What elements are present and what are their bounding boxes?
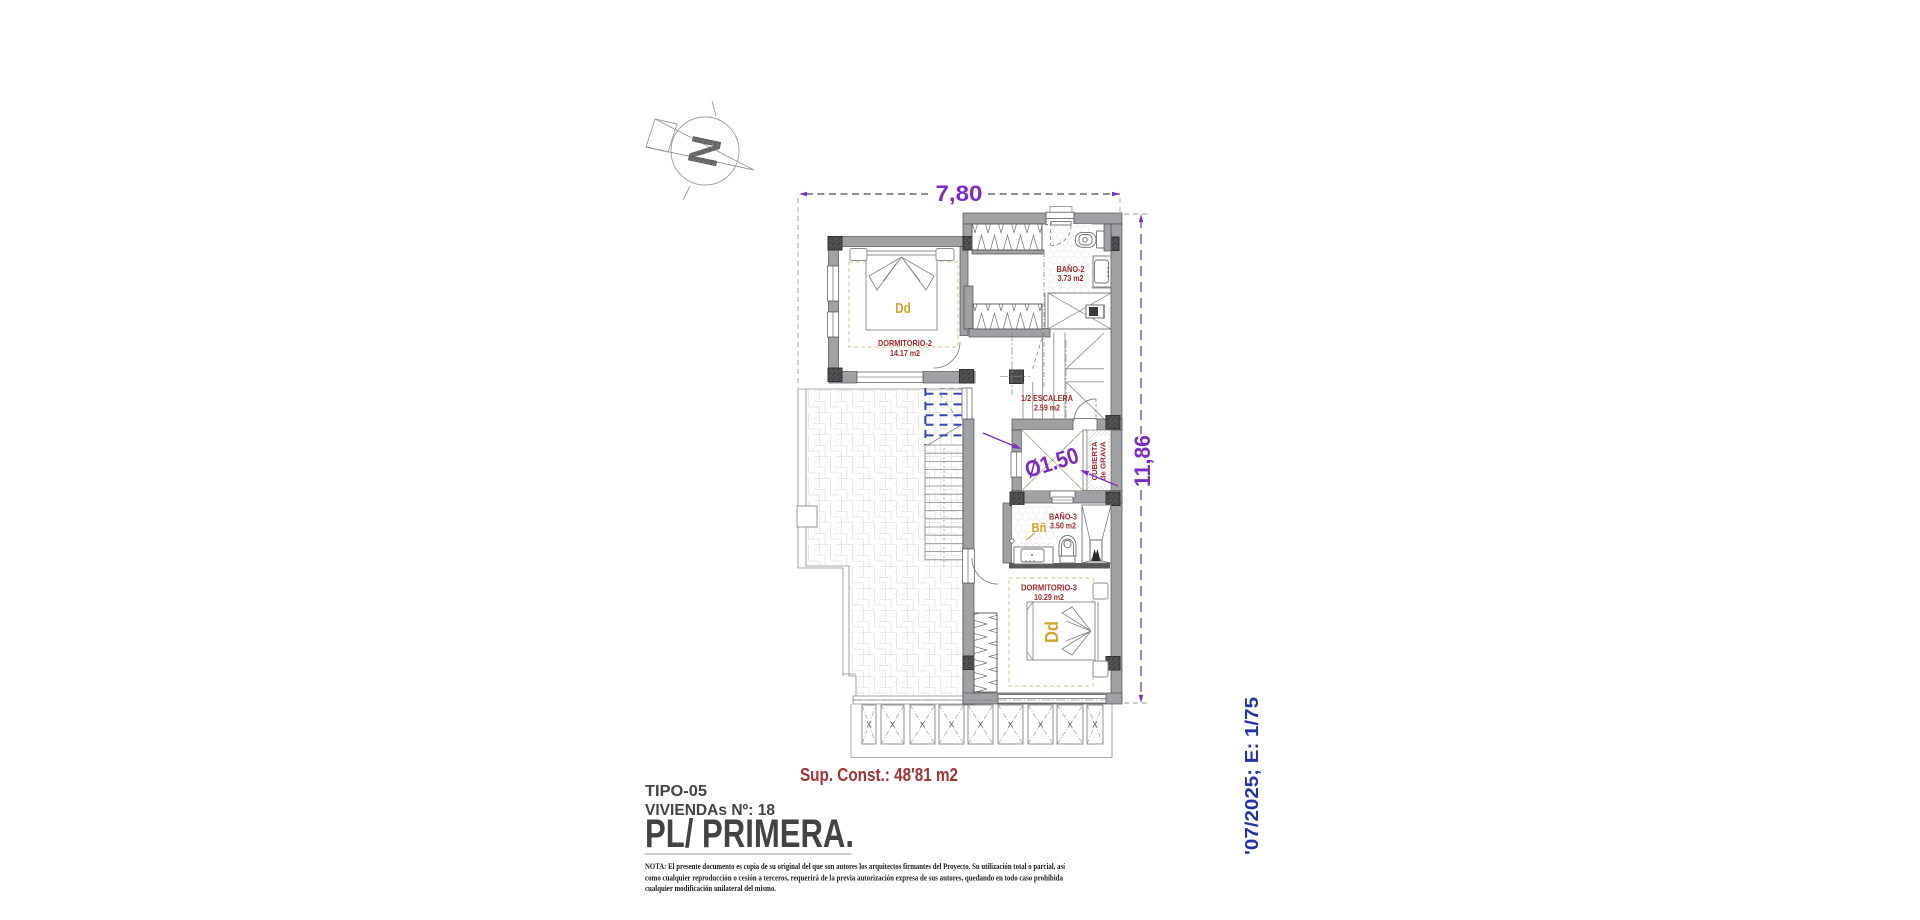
svg-text:BAÑO-2: BAÑO-2 [1057,265,1085,274]
svg-text:Bñ: Bñ [1032,520,1047,535]
svg-text:11,86: 11,86 [1130,435,1155,487]
svg-text:X: X [949,720,955,730]
svg-text:NOTA: El presente documento es: NOTA: El presente documento es copia de … [645,861,1065,871]
svg-text:cualquier modificación unilate: cualquier modificación unilateral del mi… [645,883,776,893]
svg-text:DORMITORIO-2: DORMITORIO-2 [878,338,932,348]
svg-text:X: X [1008,720,1014,730]
svg-text:3.50 m2: 3.50 m2 [1050,522,1076,531]
svg-text:1/2 ESCALERA: 1/2 ESCALERA [1021,393,1073,403]
svg-text:Sup. Const.: 48'81 m2: Sup. Const.: 48'81 m2 [800,765,958,785]
svg-text:de GRAVA: de GRAVA [1099,441,1108,481]
svg-text:TIPO-05: TIPO-05 [645,783,707,800]
svg-text:X: X [866,720,872,730]
svg-text:X: X [1092,720,1098,730]
svg-text:DORMITORIO-3: DORMITORIO-3 [1021,583,1077,593]
svg-text:3.73 m2: 3.73 m2 [1058,274,1084,283]
svg-text:'07/2025; E: 1/75: '07/2025; E: 1/75 [1242,697,1262,855]
svg-text:X: X [890,720,896,730]
svg-text:X: X [1067,720,1073,730]
svg-text:X: X [978,720,984,730]
svg-text:2.59 m2: 2.59 m2 [1034,404,1060,413]
svg-text:Dd: Dd [895,300,911,317]
svg-text:14.17 m2: 14.17 m2 [890,349,920,358]
svg-text:BAÑO-3: BAÑO-3 [1049,513,1077,522]
svg-text:como cualquier reproducción o: como cualquier reproducción o cesión a t… [645,873,1064,883]
svg-text:Dd: Dd [1042,621,1062,643]
svg-text:PL/ PRIMERA.: PL/ PRIMERA. [645,812,854,856]
svg-text:X: X [1038,720,1044,730]
svg-text:X: X [920,720,926,730]
svg-text:7,80: 7,80 [936,181,983,206]
svg-text:10.29 m2: 10.29 m2 [1034,593,1064,602]
